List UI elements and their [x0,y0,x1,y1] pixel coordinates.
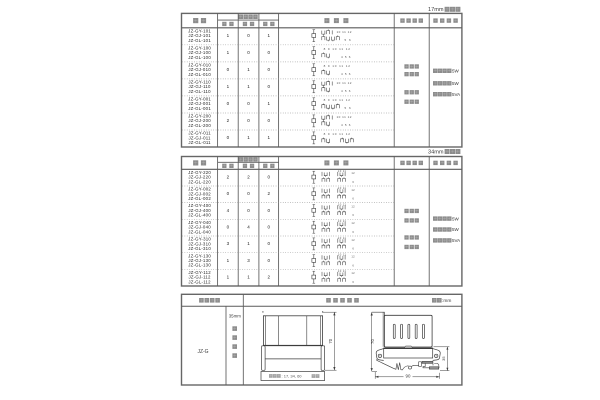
svg-text:6: 6 [352,247,354,251]
svg-text:: 17, 34, 60: : 17, 34, 60 [282,373,303,378]
svg-text:JZ-GL-200: JZ-GL-200 [188,123,211,128]
svg-text:10 11 12: 10 11 12 [337,115,352,119]
svg-text:12: 12 [351,271,355,275]
svg-text:8 9 10 11 12: 8 9 10 11 12 [324,132,351,136]
svg-text:5W: 5W [452,216,460,221]
svg-text:8 9 10 11 12: 8 9 10 11 12 [324,64,351,68]
svg-text:12: 12 [351,255,355,259]
svg-text:12: 12 [351,204,355,208]
svg-text:34mm: 34mm [428,149,444,155]
svg-text:6: 6 [352,263,354,267]
svg-text:JZ-GL-011: JZ-GL-011 [188,140,211,145]
svg-text:JZ-GL-130: JZ-GL-130 [188,263,211,268]
svg-text:4 5 6: 4 5 6 [341,123,351,127]
svg-text:90: 90 [406,374,411,379]
svg-text:JZ-GL-220: JZ-GL-220 [188,179,211,184]
svg-text:4 5 6: 4 5 6 [341,55,351,59]
svg-text::mm: :mm [442,299,451,304]
svg-text:JZ-GL-110: JZ-GL-110 [188,89,211,94]
svg-text:JZ-GL-400: JZ-GL-400 [188,213,211,218]
svg-text:JZ-GL-310: JZ-GL-310 [188,246,211,251]
svg-text:35: 35 [441,356,446,361]
svg-text:JZ-GL-112: JZ-GL-112 [188,279,211,284]
svg-text:10 11: 10 11 [338,236,347,240]
svg-text:17mm: 17mm [428,7,444,13]
svg-text:5W: 5W [452,81,460,86]
svg-text:8 9 10 11 12: 8 9 10 11 12 [324,98,351,102]
svg-text:10 11: 10 11 [338,186,347,190]
svg-text:35mm: 35mm [229,313,242,318]
svg-text:JZ-GL-010: JZ-GL-010 [188,72,211,77]
svg-text:6: 6 [352,213,354,217]
svg-text:10 11: 10 11 [338,253,347,257]
svg-text:JZ-GL-002: JZ-GL-002 [188,196,211,201]
svg-text:5VA: 5VA [452,92,460,97]
svg-text:70: 70 [328,338,333,343]
svg-text:70: 70 [370,339,375,344]
svg-text:JZ-GL-001: JZ-GL-001 [188,106,211,111]
svg-text:10 11: 10 11 [338,219,347,223]
svg-text:4 5 6: 4 5 6 [341,72,351,76]
svg-text:10 11 12: 10 11 12 [337,30,352,34]
svg-text:12: 12 [351,171,355,175]
svg-text:5 6: 5 6 [345,38,352,42]
svg-text:6: 6 [352,197,354,201]
svg-text:5 6: 5 6 [345,106,352,110]
svg-text:JZ-GL-101: JZ-GL-101 [188,38,211,43]
svg-text:10 11 12: 10 11 12 [337,81,352,85]
svg-text:JZ-G: JZ-G [197,349,208,355]
svg-text:6: 6 [352,230,354,234]
svg-text:JZ-GL-040: JZ-GL-040 [188,229,211,234]
svg-text:10 11: 10 11 [338,202,347,206]
svg-text:12: 12 [351,221,355,225]
svg-text:JZ-GL-100: JZ-GL-100 [188,55,211,60]
svg-text:8 9 10 11 12: 8 9 10 11 12 [324,47,351,51]
svg-text:5W: 5W [452,69,460,74]
svg-text:4 5 6: 4 5 6 [341,89,351,93]
svg-text:5W: 5W [452,227,460,232]
svg-text:10 11: 10 11 [338,169,347,173]
svg-text:5VA: 5VA [452,238,460,243]
svg-text:6: 6 [352,180,354,184]
svg-text:12: 12 [351,238,355,242]
svg-text:10 11: 10 11 [338,269,347,273]
svg-text:12: 12 [351,188,355,192]
svg-text:6: 6 [352,280,354,284]
